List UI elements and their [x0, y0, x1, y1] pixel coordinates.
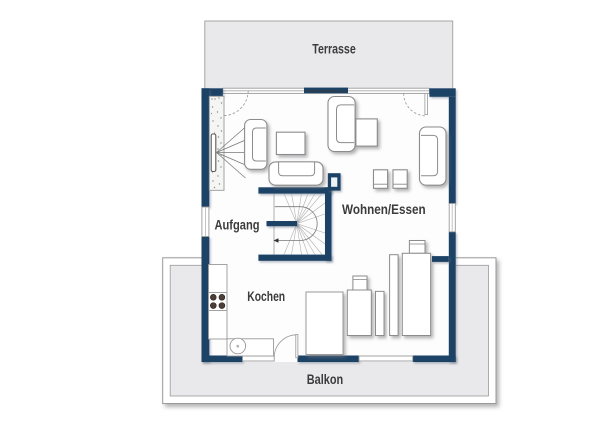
svg-text:Kochen: Kochen — [247, 288, 285, 304]
svg-text:Balkon: Balkon — [307, 372, 343, 387]
svg-text:Aufgang: Aufgang — [215, 216, 260, 232]
svg-text:www.ihrartplus.com: www.ihrartplus.com — [305, 88, 347, 93]
svg-text:Wohnen/Essen: Wohnen/Essen — [342, 201, 426, 217]
svg-text:Terrasse: Terrasse — [312, 42, 356, 57]
